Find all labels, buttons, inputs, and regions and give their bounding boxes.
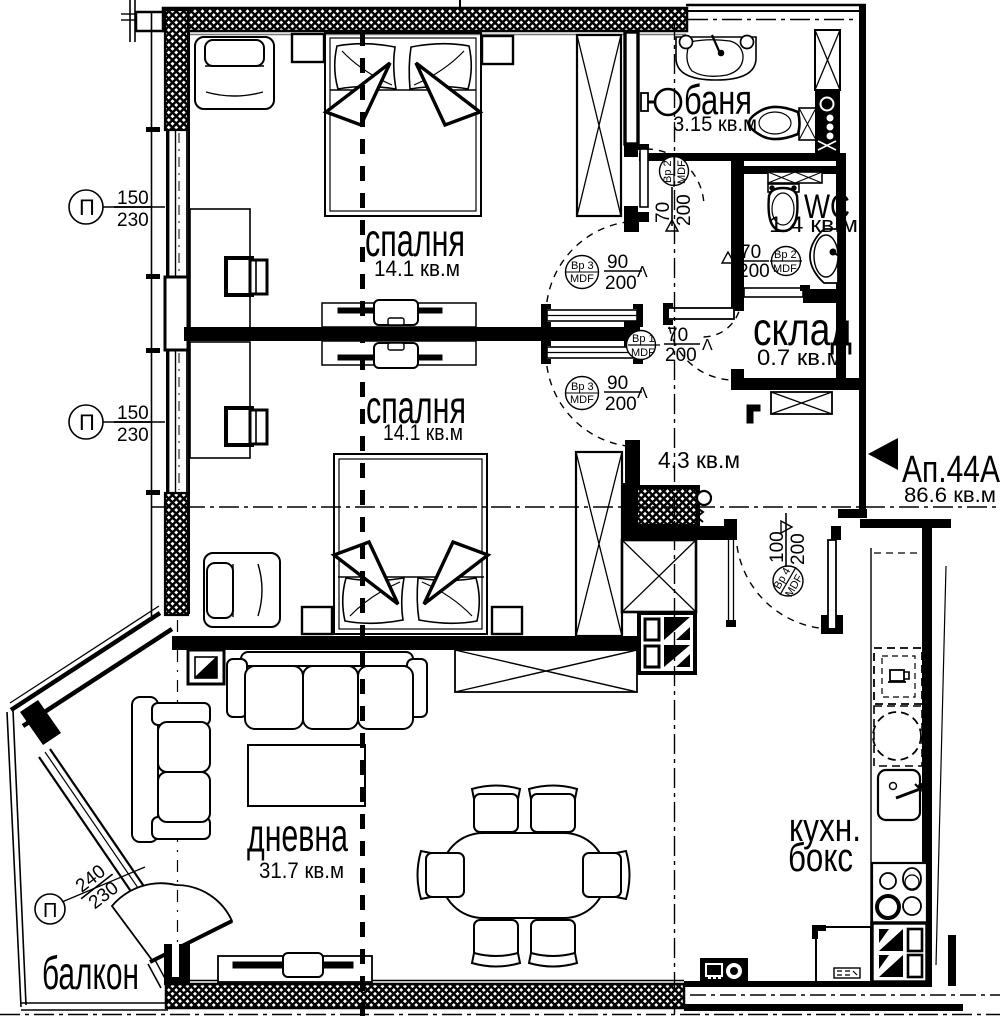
svg-text:90: 90: [607, 373, 628, 394]
svg-text:Вр 3: Вр 3: [571, 381, 594, 393]
svg-text:200: 200: [605, 273, 637, 294]
svg-text:70: 70: [740, 242, 761, 263]
svg-text:MDF: MDF: [570, 273, 594, 285]
svg-text:П: П: [79, 410, 95, 435]
svg-text:100: 100: [767, 531, 788, 563]
svg-text:балкон: балкон: [42, 947, 139, 999]
svg-text:4.3 кв.м: 4.3 кв.м: [658, 447, 740, 473]
svg-text:150: 150: [117, 188, 149, 209]
svg-text:200: 200: [674, 194, 695, 226]
svg-text:Вр 1: Вр 1: [632, 333, 655, 345]
svg-text:90: 90: [607, 252, 628, 273]
svg-text:П: П: [79, 195, 95, 220]
svg-text:бокс: бокс: [788, 836, 853, 880]
svg-text:Λ: Λ: [702, 337, 713, 354]
svg-text:П: П: [43, 900, 57, 922]
svg-text:200: 200: [605, 394, 637, 415]
svg-text:3.15 кв.м: 3.15 кв.м: [673, 113, 757, 136]
svg-text:Вр 2: Вр 2: [662, 160, 674, 183]
svg-text:31.7 кв.м: 31.7 кв.м: [259, 858, 344, 883]
svg-text:1.4 кв.м: 1.4 кв.м: [769, 212, 858, 237]
svg-text:MDF: MDF: [570, 394, 594, 406]
svg-text:14.1 кв.м: 14.1 кв.м: [383, 420, 463, 445]
svg-text:230: 230: [117, 210, 149, 231]
svg-text:70: 70: [667, 325, 688, 346]
svg-text:MDF: MDF: [631, 347, 655, 359]
svg-text:150: 150: [117, 403, 149, 424]
svg-text:Λ: Λ: [637, 264, 648, 281]
svg-text:200: 200: [665, 345, 697, 366]
svg-text:MDF: MDF: [676, 160, 688, 184]
svg-text:Вр 3: Вр 3: [571, 260, 594, 272]
svg-text:MDF: MDF: [773, 263, 797, 275]
svg-text:70: 70: [653, 202, 674, 223]
svg-text:200: 200: [738, 261, 770, 282]
svg-text:0.7 кв.м: 0.7 кв.м: [757, 345, 843, 370]
svg-text:86.6 кв.м: 86.6 кв.м: [904, 484, 996, 507]
svg-text:200: 200: [788, 533, 809, 565]
svg-text:дневна: дневна: [247, 809, 348, 861]
svg-text:230: 230: [117, 425, 149, 446]
svg-text:Вр 2: Вр 2: [774, 249, 797, 261]
svg-text:14.1 кв.м: 14.1 кв.м: [374, 256, 460, 281]
svg-text:Λ: Λ: [637, 385, 648, 402]
